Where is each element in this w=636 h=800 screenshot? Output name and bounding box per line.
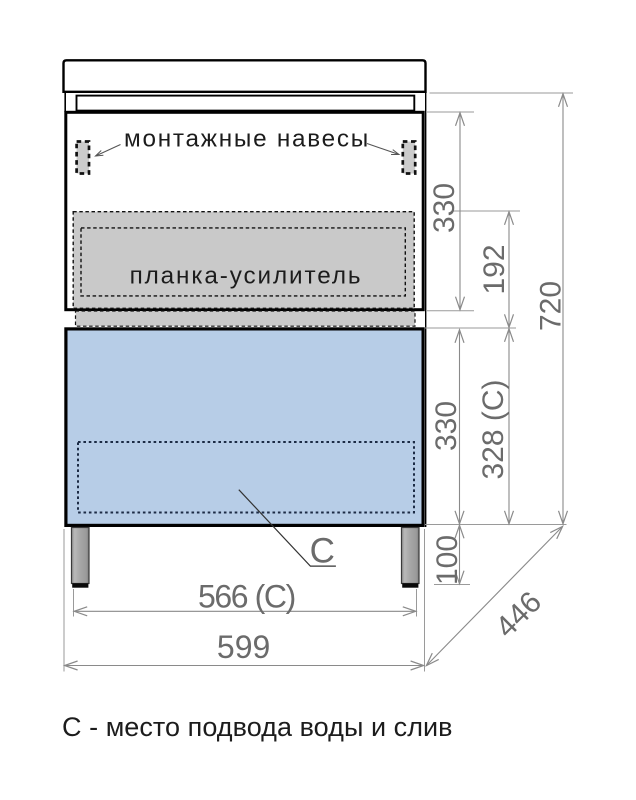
svg-text:566 (C): 566 (C) [198,579,295,615]
svg-text:планка-усилитель: планка-усилитель [130,262,363,289]
svg-text:599: 599 [217,629,270,665]
svg-text:монтажные навесы: монтажные навесы [124,126,370,153]
svg-text:328 (C): 328 (C) [477,379,510,479]
svg-text:330: 330 [430,401,463,451]
svg-text:330: 330 [428,183,461,233]
svg-text:720: 720 [535,281,568,331]
svg-text:С - место подвода воды и слив: С - место подвода воды и слив [62,712,453,742]
svg-text:C: C [310,532,335,571]
svg-text:192: 192 [478,244,511,294]
svg-text:100: 100 [431,535,464,585]
